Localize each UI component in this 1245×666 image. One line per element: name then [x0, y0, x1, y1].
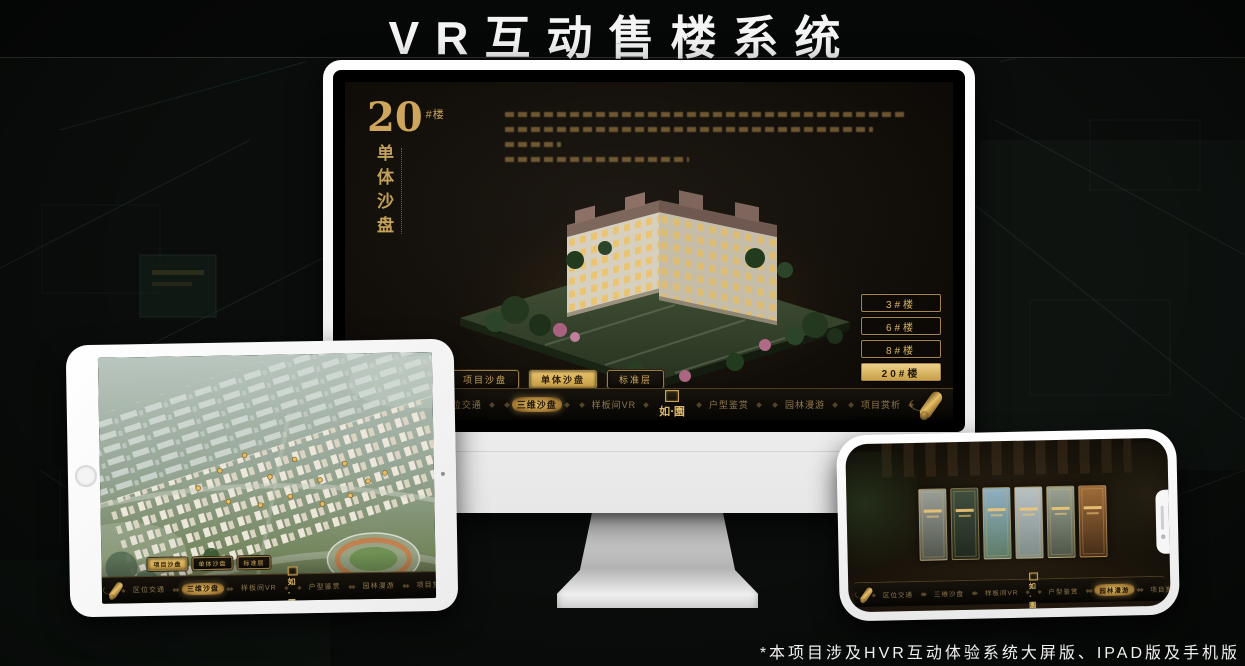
nav-item[interactable]: 区位交通 [872, 588, 923, 601]
diamond-ornament-icon [848, 402, 854, 408]
nav-item[interactable]: 项目赏析 [849, 397, 913, 412]
scene-card-caption [924, 509, 942, 512]
sub-tab-label: 项目沙盘 [463, 373, 507, 386]
sign-text-line [152, 270, 204, 275]
scene-card[interactable] [950, 488, 980, 561]
nav-item-label: 样板间VR [587, 397, 642, 412]
nav-item[interactable]: 三维沙盘 [923, 587, 974, 600]
sub-tab-label: 标准层 [243, 558, 264, 567]
brand-logo-text: 如·園 [659, 403, 685, 419]
nav-item[interactable]: 户型鉴赏 [697, 397, 761, 412]
nav-item-label: 园林漫游 [780, 397, 830, 412]
nav-group-left: 区位交通 三维沙盘 样板间VR [122, 582, 288, 597]
headline-vertical-wrap: 单体沙盘 [371, 144, 445, 240]
diamond-ornament-icon [297, 585, 301, 589]
seal-icon [287, 566, 297, 575]
diamond-ornament-icon [175, 587, 179, 591]
nav-item-label: 样板间VR [236, 582, 282, 595]
sub-tab[interactable]: 项目沙盘 [147, 557, 187, 571]
phone-screen: 区位交通 三维沙盘 样板间VR 如·園 [845, 438, 1170, 613]
nav-item[interactable]: 样板间VR [230, 582, 288, 595]
diamond-ornament-icon [504, 402, 510, 408]
tablet-device: 项目沙盘 单体沙盘 标准层 区位交通 三维沙盘 [66, 339, 459, 618]
scroll-menu-icon[interactable] [917, 389, 944, 420]
floor-button[interactable]: 20#楼 [861, 363, 941, 381]
speaker-icon [1161, 505, 1164, 529]
nav-item-label: 项目赏析 [856, 397, 906, 412]
scene-card[interactable] [1014, 486, 1044, 559]
nav-item-label: 三维沙盘 [929, 587, 969, 600]
text-line [505, 112, 905, 117]
nav-item-label: 区位交通 [878, 588, 918, 601]
home-button[interactable] [75, 465, 97, 487]
diamond-ornament-icon [351, 584, 355, 588]
nav-item[interactable]: 样板间VR [580, 397, 649, 412]
scene-card[interactable] [1046, 486, 1076, 559]
footnote: *本项目涉及HVR互动体验系统大屏版、IPAD版及手机版 [760, 639, 1240, 663]
tablet-screen: 项目沙盘 单体沙盘 标准层 区位交通 三维沙盘 [98, 352, 436, 604]
headline-rule [401, 148, 402, 234]
nav-item-label: 三维沙盘 [512, 397, 562, 412]
scene-card-caption [959, 514, 970, 516]
diamond-ornament-icon [121, 588, 125, 592]
nav-item[interactable]: 项目赏析 [406, 579, 437, 592]
camera-icon [441, 472, 445, 476]
sub-tab-label: 单体沙盘 [541, 373, 585, 386]
building-3d-model[interactable] [425, 140, 885, 390]
phone-device: 区位交通 三维沙盘 样板间VR 如·園 [836, 428, 1180, 621]
nav-item[interactable]: 样板间VR [974, 586, 1029, 599]
diamond-ornament-icon [1088, 589, 1092, 593]
nav-item[interactable]: 园林漫游 [352, 580, 406, 593]
scene-card-caption [1084, 506, 1102, 509]
nav-item-label: 项目赏析 [412, 579, 437, 592]
diamond-ornament-icon [696, 402, 702, 408]
diamond-ornament-icon [229, 586, 233, 590]
floor-button-label: 20#楼 [882, 365, 921, 380]
nav-group-right: 户型鉴赏 园林漫游 项目赏析 [685, 397, 925, 412]
sub-tab[interactable]: 标准层 [607, 370, 664, 389]
scene-card[interactable] [918, 488, 948, 561]
brand-logo[interactable]: 如·園 [287, 566, 298, 603]
nav-group-left: 区位交通 三维沙盘 样板间VR [419, 397, 659, 412]
building-unit: #楼 [426, 106, 445, 122]
tablet-nav-bar: 区位交通 三维沙盘 样板间VR 如·園 [102, 571, 436, 604]
promo-canvas: VR互动售楼系统 20 #楼 单体沙盘 [0, 0, 1245, 666]
text-line [505, 142, 561, 147]
diamond-ornament-icon [643, 402, 649, 408]
nav-group-right: 户型鉴赏 园林漫游 项目赏析 [298, 579, 437, 594]
sub-tab[interactable]: 单体沙盘 [529, 370, 597, 389]
scene-card-caption [1055, 512, 1066, 514]
nav-item-label: 项目赏析 [1145, 582, 1170, 595]
nav-item-label: 户型鉴赏 [704, 397, 754, 412]
floor-button-list: 3#楼 6#楼 8#楼 20#楼 [861, 294, 941, 381]
scene-card-caption [991, 514, 1002, 516]
building-headline: 20 #楼 单体沙盘 [367, 100, 445, 240]
nav-group-left: 区位交通 三维沙盘 样板间VR [872, 586, 1029, 601]
diamond-ornament-icon [974, 591, 978, 595]
diamond-ornament-icon [1139, 587, 1143, 591]
diamond-ornament-icon [405, 583, 409, 587]
floor-button[interactable]: 6#楼 [861, 317, 941, 335]
diamond-ornament-icon [872, 593, 876, 597]
nav-item[interactable]: 区位交通 [122, 584, 176, 597]
page-title: VR互动售楼系统 [0, 2, 1245, 68]
text-line [505, 127, 873, 132]
nav-item[interactable]: 园林漫游 [1089, 583, 1140, 596]
nav-item[interactable]: 户型鉴赏 [298, 580, 352, 593]
sub-tab[interactable]: 项目沙盘 [451, 370, 519, 389]
seal-icon [665, 390, 679, 402]
diamond-ornament-icon [489, 402, 495, 408]
sign-text-line [152, 282, 192, 286]
nav-item-label: 园林漫游 [1094, 583, 1134, 596]
scene-card[interactable] [1078, 485, 1108, 558]
scene-card-caption [988, 508, 1006, 511]
nav-item-label: 户型鉴赏 [304, 581, 346, 594]
nav-item[interactable]: 户型鉴赏 [1038, 584, 1089, 597]
background-aerial [980, 140, 1245, 470]
nav-item-label: 园林漫游 [358, 580, 400, 593]
nav-item[interactable]: 三维沙盘 [176, 583, 230, 596]
diamond-ornament-icon [832, 402, 838, 408]
sub-tab-label: 单体沙盘 [198, 559, 226, 568]
sandbox-sub-tabs: 项目沙盘 单体沙盘 标准层 [451, 370, 664, 389]
phone-notch [1155, 490, 1169, 554]
scene-card-caption [956, 509, 974, 512]
sub-tab[interactable]: 单体沙盘 [192, 557, 232, 571]
floor-button-label: 6#楼 [886, 319, 916, 334]
scene-card-caption [1023, 513, 1034, 515]
scene-card-caption [927, 515, 938, 517]
nav-item-label: 户型鉴赏 [1043, 584, 1083, 597]
headline-row: 20 #楼 [367, 100, 445, 136]
diamond-ornament-icon [579, 402, 585, 408]
scene-gallery [918, 485, 1107, 561]
nav-item-label: 三维沙盘 [182, 583, 224, 596]
nav-group-right: 户型鉴赏 园林漫游 项目赏析 [1038, 582, 1171, 597]
section-title: 单体沙盘 [371, 144, 396, 240]
nav-item-label: 区位交通 [128, 584, 170, 597]
description-text-block [505, 112, 905, 172]
diamond-ornament-icon [1037, 590, 1041, 594]
seal-icon [1029, 572, 1038, 580]
diamond-ornament-icon [772, 402, 778, 408]
brand-logo-text: 如·園 [287, 576, 298, 603]
text-line [505, 157, 689, 162]
sub-tab[interactable]: 标准层 [237, 556, 270, 570]
nav-item[interactable]: 园林漫游 [773, 397, 837, 412]
camera-icon [1161, 534, 1165, 538]
building-number: 20 [367, 100, 423, 136]
scene-card[interactable] [982, 487, 1012, 560]
sub-tab-label: 标准层 [619, 373, 652, 386]
sub-tab-label: 项目沙盘 [153, 559, 181, 568]
brand-logo[interactable]: 如·園 [659, 390, 685, 419]
scene-card-caption [1087, 512, 1098, 514]
floor-button[interactable]: 8#楼 [861, 340, 941, 358]
floor-button-label: 8#楼 [886, 342, 916, 357]
nav-item-label: 样板间VR [980, 586, 1024, 599]
diamond-ornament-icon [923, 592, 927, 596]
scene-card-caption [1020, 507, 1038, 510]
diamond-ornament-icon [756, 402, 762, 408]
nav-item[interactable]: 三维沙盘 [505, 397, 569, 412]
scene-card-caption [1052, 507, 1070, 510]
floor-button-label: 3#楼 [886, 296, 916, 311]
nav-item[interactable]: 项目赏析 [1140, 582, 1171, 595]
diamond-ornament-icon [564, 402, 570, 408]
floor-button[interactable]: 3#楼 [861, 294, 941, 312]
tablet-sub-tabs: 项目沙盘 单体沙盘 标准层 [147, 556, 270, 571]
